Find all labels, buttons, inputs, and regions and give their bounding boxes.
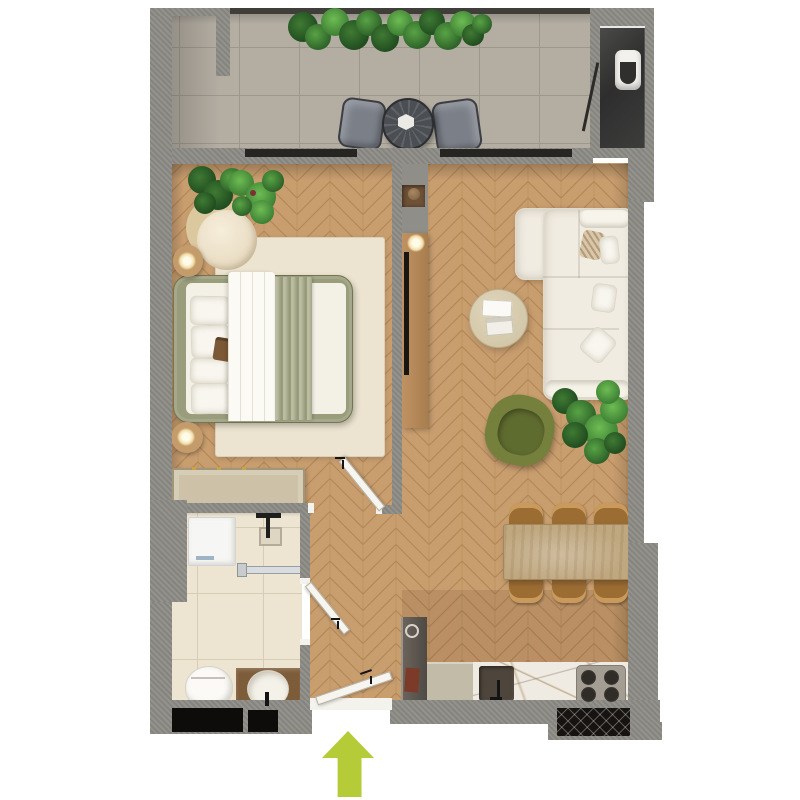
tv (404, 252, 409, 375)
sofa-pillow (590, 282, 618, 313)
wall-divider (392, 163, 402, 513)
shower-drain (259, 527, 282, 546)
console-lamp (407, 234, 425, 252)
wall-left (150, 8, 172, 734)
bed-duvet-fold (228, 272, 275, 421)
sofa-pillow (599, 235, 621, 265)
cabinet-book (404, 668, 420, 693)
bistro-chair (337, 96, 388, 152)
door-jamb (300, 639, 310, 645)
wall-bathroom-lower (300, 643, 310, 704)
wall-right (628, 200, 644, 543)
burner (604, 670, 619, 685)
decor-bowl (408, 188, 420, 200)
toilet-seat-line (191, 677, 225, 679)
table-lamp (178, 252, 196, 270)
door-handle (331, 618, 340, 620)
wall-plumbing-chase (150, 500, 187, 602)
balcony-glass-door-bedroom (245, 149, 357, 157)
glass-bracket (237, 563, 247, 577)
book (482, 299, 513, 318)
decor-ring (405, 624, 419, 638)
wall-right-upper (628, 152, 654, 202)
wall-vent (248, 710, 278, 732)
burner (581, 687, 596, 702)
entry-mat-hatch (557, 708, 630, 736)
wardrobe-knob (192, 467, 196, 470)
door-handle (337, 621, 339, 629)
lounge-chair (197, 210, 257, 270)
wall-bathroom-upper (300, 505, 310, 582)
wardrobe-knob (217, 467, 221, 470)
floor-plan (0, 0, 800, 800)
door-handle (342, 460, 344, 469)
bed-pillow (190, 357, 230, 384)
wall-vent (172, 708, 243, 732)
bistro-chair (431, 97, 484, 155)
balcony-glass-door-living (440, 149, 572, 157)
door-jamb (308, 503, 314, 513)
bed-runner (275, 277, 312, 420)
table-lamp (177, 428, 195, 446)
bed-pillow (191, 383, 231, 415)
washer-display (196, 556, 214, 560)
bed-pillow (190, 296, 231, 326)
door-handle (335, 457, 345, 459)
water-heater-pipe (620, 62, 636, 84)
shower-stem (266, 518, 270, 538)
burner (604, 687, 619, 702)
book (485, 316, 513, 336)
door-handle (370, 676, 372, 684)
wall-right-lower (628, 543, 658, 704)
wardrobe-knob (242, 467, 246, 470)
vanity-faucet (265, 692, 269, 706)
wall-balcony-stub (216, 8, 230, 76)
burner (581, 670, 596, 685)
sink-faucet-spout (490, 697, 502, 700)
sofa-armrest (579, 210, 630, 228)
dining-table (503, 524, 631, 580)
